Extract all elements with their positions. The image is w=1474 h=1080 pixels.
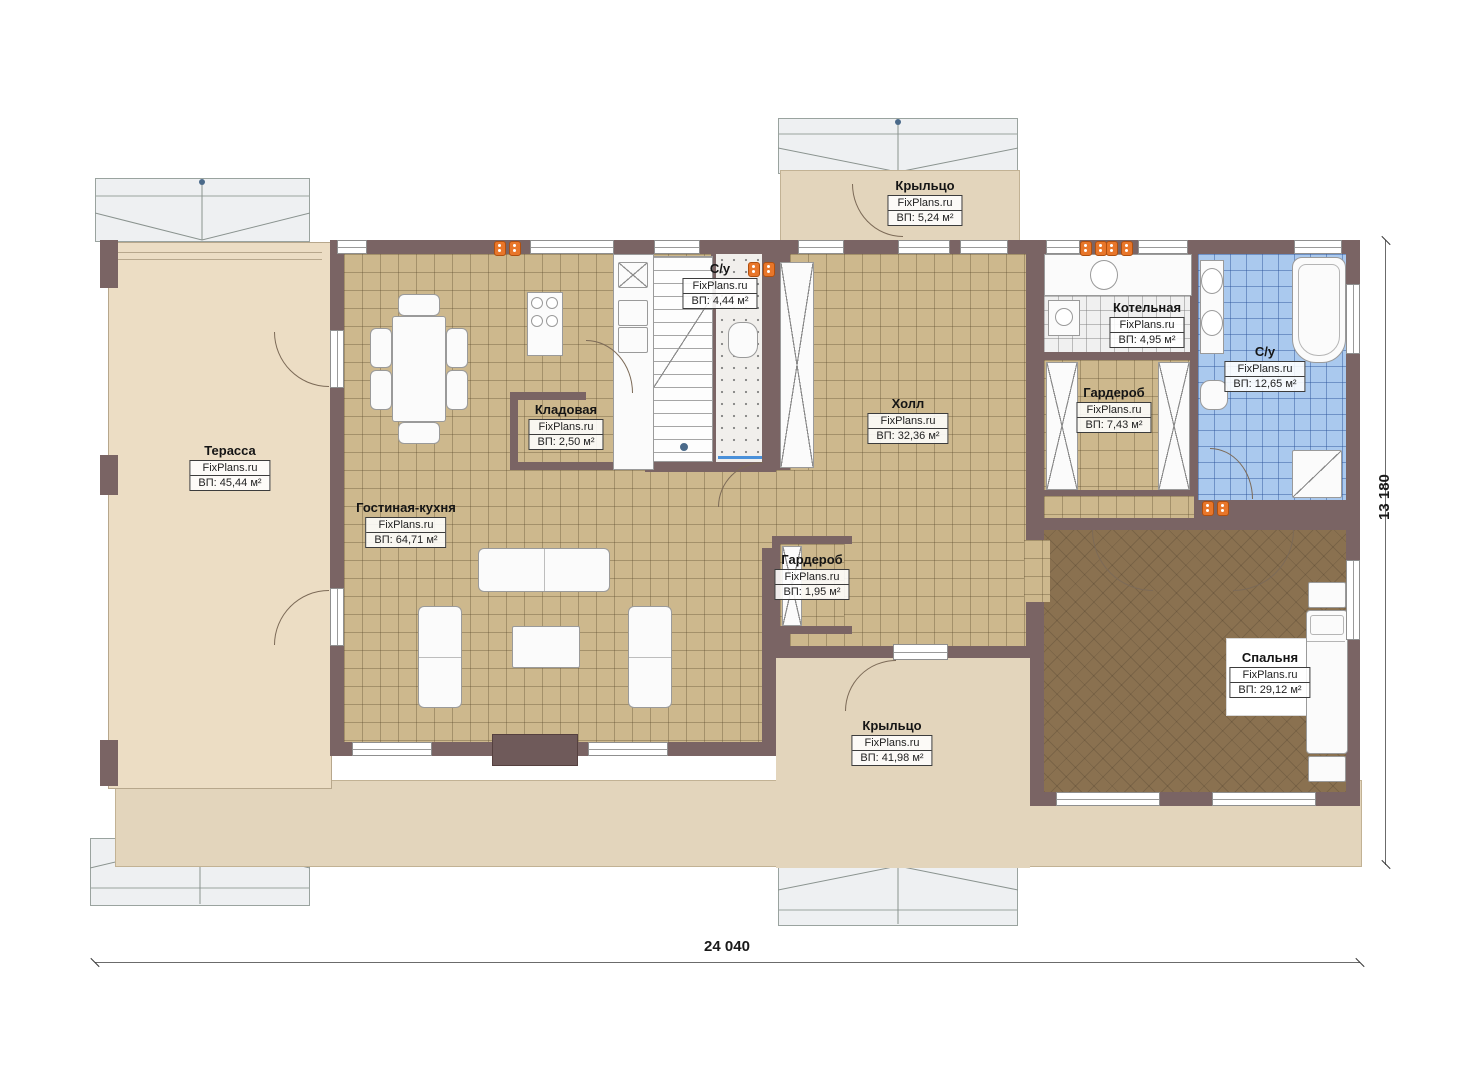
pantry-wall-left <box>510 392 518 470</box>
window-bedroom-bottom-1 <box>1056 792 1160 806</box>
wardrobe-small-wall-bottom <box>772 626 852 634</box>
wc-small-toilet <box>728 322 758 358</box>
kitchen-sink-upper <box>618 300 648 326</box>
room-area: ВП: 12,65 м² <box>1225 377 1304 391</box>
room-area: ВП: 32,36 м² <box>868 429 947 443</box>
label-porch-bottom: Крыльцо FixPlans.ruВП: 41,98 м² <box>851 718 932 766</box>
dining-chair-right-2 <box>446 370 468 410</box>
brand-text: FixPlans.ru <box>775 570 848 585</box>
stove-burner-1 <box>531 297 543 309</box>
bathroom-big-bottom-wall-right <box>1252 500 1346 516</box>
nightstand-top <box>1308 582 1346 608</box>
room-name: С/у <box>1224 344 1305 359</box>
brand-text: FixPlans.ru <box>1230 668 1309 683</box>
room-area: ВП: 2,50 м² <box>529 435 602 449</box>
inner-wall-boiler-wardrobe <box>1044 352 1190 360</box>
kitchen-appliance <box>618 262 648 288</box>
label-wardrobe-small: Гардероб FixPlans.ruВП: 1,95 м² <box>774 552 849 600</box>
room-name: Холл <box>867 396 948 411</box>
bedroom-top-wall-right <box>1296 518 1346 530</box>
dimension-tick-top <box>1381 236 1390 245</box>
stove-burner-2 <box>546 297 558 309</box>
room-name: Крыльцо <box>887 178 962 193</box>
hall-closet <box>780 262 814 468</box>
room-area: ВП: 7,43 м² <box>1077 418 1150 432</box>
vent-cell-icon <box>763 262 775 277</box>
dining-table <box>392 316 446 422</box>
wardrobe-small-wall-top <box>772 536 852 544</box>
wardrobe-main-closet-right <box>1158 362 1190 490</box>
label-wardrobe-main: Гардероб FixPlans.ruВП: 7,43 м² <box>1076 385 1151 433</box>
window-right-1 <box>1346 284 1360 354</box>
dining-chair-bottom <box>398 422 440 444</box>
wc-small-threshold <box>718 456 762 459</box>
stove-burner-3 <box>531 315 543 327</box>
bed-blanket-line <box>1307 641 1345 642</box>
vent-cell-icon <box>1106 241 1118 256</box>
brand-text: FixPlans.ru <box>852 736 931 751</box>
window-kitchen <box>530 240 614 254</box>
vent-corridor <box>1202 501 1229 516</box>
window-top-1 <box>337 240 367 254</box>
terrace-wall-stub-bottom <box>100 740 118 786</box>
vent-cell-icon <box>1202 501 1214 516</box>
dining-chair-left-1 <box>370 328 392 368</box>
terrace-wall-stub-top <box>100 240 118 288</box>
window-top-right-2 <box>1294 240 1342 254</box>
bathtub-inner <box>1298 264 1340 356</box>
room-name: С/у <box>682 261 757 276</box>
floor-plan: Терасса FixPlans.ruВП: 45,44 м² Крыльцо … <box>0 0 1474 1080</box>
terrace-wall-stub-mid <box>100 455 118 495</box>
label-hall: Холл FixPlans.ruВП: 32,36 м² <box>867 396 948 444</box>
brand-text: FixPlans.ru <box>888 196 961 211</box>
window-boiler <box>1046 240 1080 254</box>
staircase-run-line <box>654 297 712 387</box>
brand-text: FixPlans.ru <box>1110 318 1183 333</box>
hall-porch-door <box>893 644 948 660</box>
label-boiler: Котельная FixPlans.ruВП: 4,95 м² <box>1109 300 1184 348</box>
window-top-right-1 <box>1138 240 1188 254</box>
dining-chair-top <box>398 294 440 316</box>
vent-cell-icon <box>509 241 521 256</box>
room-name: Крыльцо <box>851 718 932 733</box>
label-pantry: Кладовая FixPlans.ruВП: 2,50 м² <box>528 402 603 450</box>
boiler-counter <box>1044 254 1192 296</box>
roof-overhang-top-left <box>95 178 310 242</box>
brand-text: FixPlans.ru <box>1225 362 1304 377</box>
dimension-tick-bottom <box>1381 860 1390 869</box>
vent-cell-icon <box>494 241 506 256</box>
dimension-height-text: 13 180 <box>1376 474 1393 520</box>
shower <box>1292 450 1342 498</box>
window-right-2 <box>1346 560 1360 640</box>
room-area: ВП: 1,95 м² <box>775 585 848 599</box>
room-name: Котельная <box>1109 300 1184 315</box>
porch-top-sidelight-left <box>798 240 844 254</box>
porch-top-sidelight-right <box>960 240 1008 254</box>
sofa-left <box>418 606 462 708</box>
room-area: ВП: 29,12 м² <box>1230 683 1309 697</box>
fireplace <box>492 734 578 766</box>
terrace-door-2 <box>330 588 344 646</box>
dimension-width-text: 24 040 <box>704 938 750 955</box>
bath-sink-2 <box>1201 310 1223 336</box>
room-name: Кладовая <box>528 402 603 417</box>
room-area: ВП: 41,98 м² <box>852 751 931 765</box>
brand-text: FixPlans.ru <box>868 414 947 429</box>
wardrobe-main-closet-left <box>1046 362 1078 490</box>
bed <box>1306 610 1348 754</box>
room-name: Спальня <box>1229 650 1310 665</box>
room-area: ВП: 4,95 м² <box>1110 333 1183 347</box>
brand-text: FixPlans.ru <box>529 420 602 435</box>
dining-chair-right-1 <box>446 328 468 368</box>
room-name: Гардероб <box>1076 385 1151 400</box>
roof-overhang-top-middle <box>778 118 1018 174</box>
staircase-start-dot <box>680 443 688 451</box>
nightstand-bottom <box>1308 756 1346 782</box>
brand-text: FixPlans.ru <box>683 279 756 294</box>
vent-cell-icon <box>1080 241 1092 256</box>
inner-wall-wardrobe-corridor <box>1044 490 1190 496</box>
room-name: Гостиная-кухня <box>356 500 456 515</box>
corridor-floor <box>1044 496 1194 518</box>
label-wc-small: С/у FixPlans.ruВП: 4,44 м² <box>682 261 757 309</box>
terrace-edge-line <box>116 252 322 260</box>
sofa-right <box>628 606 672 708</box>
sofa-large <box>478 548 610 592</box>
room-area: ВП: 5,24 м² <box>888 211 961 225</box>
pantry-wall-top-left <box>510 392 586 400</box>
roof-overhang-bottom-middle <box>778 862 1018 926</box>
porch-top-entry-door <box>898 240 950 254</box>
terrace-floor <box>108 242 332 789</box>
bath-sink-1 <box>1201 268 1223 294</box>
bedroom-top-wall-left <box>1044 518 1090 530</box>
vent-cell-icon <box>1121 241 1133 256</box>
label-living-kitchen: Гостиная-кухня FixPlans.ruВП: 64,71 м² <box>356 500 456 548</box>
bedroom-top-wall-middle <box>1155 518 1231 530</box>
brand-text: FixPlans.ru <box>366 518 445 533</box>
vent-boiler-1 <box>1080 241 1107 256</box>
room-name: Терасса <box>189 443 270 458</box>
terrace-door-1 <box>330 330 344 388</box>
stove-burner-4 <box>546 315 558 327</box>
vent-cell-icon <box>1217 501 1229 516</box>
window-living-bottom-1 <box>352 742 432 756</box>
boiler-sink <box>1090 260 1118 290</box>
brand-text: FixPlans.ru <box>1077 403 1150 418</box>
coffee-table <box>512 626 580 668</box>
brand-text: FixPlans.ru <box>190 461 269 476</box>
kitchen-sink-lower <box>618 327 648 353</box>
vent-boiler-2 <box>1106 241 1133 256</box>
label-wc-big: С/у FixPlans.ruВП: 12,65 м² <box>1224 344 1305 392</box>
label-porch-top: Крыльцо FixPlans.ruВП: 5,24 м² <box>887 178 962 226</box>
dimension-line-right <box>1385 240 1386 865</box>
label-terrace: Терасса FixPlans.ruВП: 45,44 м² <box>189 443 270 491</box>
dimension-line-bottom <box>95 962 1360 963</box>
room-area: ВП: 4,44 м² <box>683 294 756 308</box>
label-bedroom: Спальня FixPlans.ruВП: 29,12 м² <box>1229 650 1310 698</box>
window-bedroom-bottom-2 <box>1212 792 1316 806</box>
washing-machine-door <box>1055 308 1073 326</box>
bed-pillow <box>1310 615 1344 635</box>
room-area: ВП: 64,71 м² <box>366 533 445 547</box>
room-name: Гардероб <box>774 552 849 567</box>
vent-kitchen <box>494 241 521 256</box>
window-stairs <box>654 240 700 254</box>
hall-corridor-opening <box>1024 540 1050 602</box>
room-area: ВП: 45,44 м² <box>190 476 269 490</box>
window-living-bottom-2 <box>588 742 668 756</box>
dining-chair-left-2 <box>370 370 392 410</box>
